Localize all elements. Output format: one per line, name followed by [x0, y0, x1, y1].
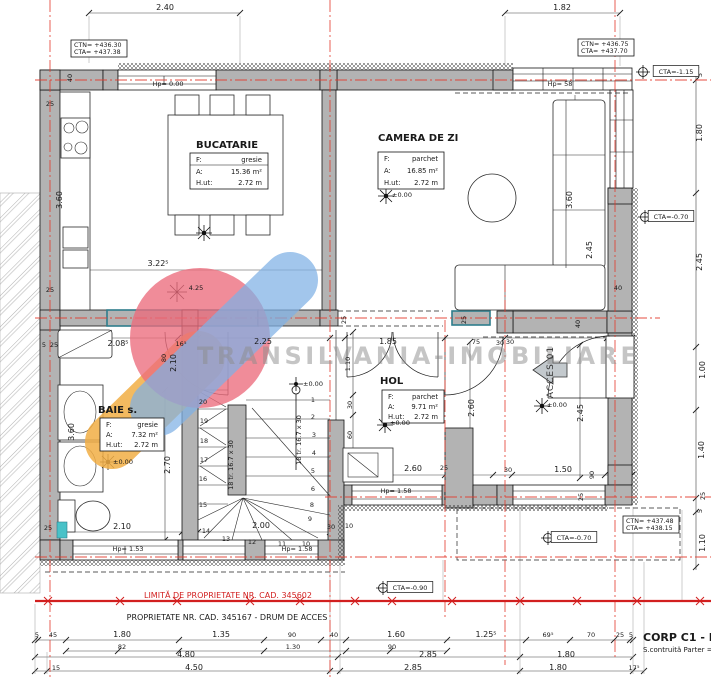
dimension-label: 2.10 — [113, 522, 131, 531]
svg-text:H.ut:: H.ut: — [196, 179, 212, 187]
stair-step-number: 18 — [200, 437, 208, 445]
chair — [175, 95, 199, 115]
chair — [246, 215, 270, 235]
dimension-label: ±0.00 — [392, 191, 412, 199]
property-limit-text: LIMITĂ DE PROPRIETATE NR. CAD. 345602 — [144, 589, 312, 600]
dimension-label: 1.25⁵ — [475, 630, 496, 639]
dimension-label: 2.45 — [695, 253, 704, 271]
dimension-label: 1.10 — [344, 357, 352, 371]
stair-step-number: 15 — [199, 501, 207, 509]
dimension-label: 75 — [472, 338, 480, 346]
dimension-label: 30 — [327, 523, 335, 531]
dimension-label: 2.45 — [585, 241, 594, 259]
dimension-label: Hp= 0.00 — [153, 80, 184, 88]
dimension-label: 25 — [340, 316, 348, 324]
stair-step-number: 16 — [199, 475, 207, 483]
dimension-label: 1.10 — [698, 534, 707, 552]
svg-text:2.72 m: 2.72 m — [238, 179, 262, 187]
room-camera-de-zi: CAMERA DE ZI F:parchet A:16.85 m² H.ut:2… — [378, 133, 458, 189]
dimension-label: 25 — [699, 492, 707, 500]
window — [513, 68, 632, 90]
room-hol: HOL F:parchet A:9.71 m² H.ut:2.72 m — [380, 376, 444, 423]
dimension-label: 1.00 — [698, 361, 707, 379]
dimension-label: 30 — [346, 401, 354, 409]
dimension-label: 30 — [506, 338, 514, 346]
dimension-label: 5 — [629, 631, 633, 639]
svg-text:CTA= +437.70: CTA= +437.70 — [581, 48, 628, 55]
svg-text:H.ut:: H.ut: — [106, 441, 122, 449]
svg-text:2.72 m: 2.72 m — [414, 179, 438, 187]
dimension-label: 25 — [50, 341, 58, 349]
svg-text:H.ut:: H.ut: — [384, 179, 400, 187]
stair-step-number: 3 — [312, 431, 316, 439]
dimension-label: 2.70 — [163, 456, 172, 474]
bathroom-cabinet — [58, 330, 112, 358]
floor-plan-canvas: TRANSILVANIA-IMOBILIARE BUCATARIE F:gres… — [0, 0, 711, 677]
svg-text:7.32 m²: 7.32 m² — [131, 431, 158, 439]
coffee-table — [468, 174, 516, 222]
corp-subtitle: S.contruită Parter = 72 — [643, 646, 711, 654]
elevation-box-topleft: CTN= +436.30 CTA= +437.38 — [71, 40, 127, 57]
svg-text:2.72 m: 2.72 m — [414, 413, 438, 421]
svg-text:A:: A: — [384, 167, 391, 175]
dimension-label: 2.60 — [467, 399, 476, 417]
dimension-label: 1.50 — [554, 465, 572, 474]
dimension-label: 1.85 — [379, 337, 397, 346]
dimension-label: 3.60 — [565, 191, 574, 209]
dimension-label: 5 — [696, 509, 704, 513]
svg-text:2.72 m: 2.72 m — [134, 441, 158, 449]
dimension-label: 3.60 — [67, 423, 76, 441]
dimension-label: 30 — [504, 466, 512, 474]
room-bucatarie: BUCATARIE F:gresie A:15.36 m² H.ut:2.72 … — [190, 140, 268, 189]
dimension-label: Hp= 1.58 — [381, 487, 412, 495]
dimension-label: 2.08⁵ — [107, 339, 128, 348]
stair-step-number: 5 — [311, 467, 315, 475]
stair-step-number: 8 — [310, 501, 314, 509]
stair-step-number: 11 — [278, 540, 286, 548]
sideboard — [343, 448, 393, 482]
dimension-label: CTA=-1.15 — [659, 68, 694, 76]
watermark-text: TRANSILVANIA-IMOBILIARE — [197, 342, 640, 370]
svg-text:parchet: parchet — [412, 393, 438, 401]
dimension-label: ±0.00 — [547, 401, 567, 409]
window — [610, 90, 633, 188]
svg-text:F:: F: — [106, 421, 112, 429]
dimension-label: 25 — [46, 286, 54, 294]
dimension-label: 40 — [66, 74, 74, 82]
dimension-label: 25 — [46, 100, 54, 108]
chair — [210, 215, 234, 235]
dimension-label: 1.35 — [212, 630, 230, 639]
floor-plan-page: TRANSILVANIA-IMOBILIARE BUCATARIE F:gres… — [0, 0, 711, 677]
chair — [175, 215, 199, 235]
dimension-label: 1.80 — [557, 650, 575, 659]
kitchen-sink — [63, 227, 88, 248]
dimension-label: 15 — [52, 664, 60, 672]
dimension-label: 3.22⁵ — [147, 259, 168, 268]
kitchen-counter — [60, 92, 90, 310]
svg-text:16.85 m²: 16.85 m² — [407, 167, 438, 175]
dimension-label: 1.80 — [113, 630, 131, 639]
dimension-label: 69⁵ — [543, 631, 554, 639]
dimension-label: 90 — [288, 631, 296, 639]
dimension-label: 1.40 — [697, 441, 706, 459]
dimension-label: 5 — [42, 341, 46, 349]
dimension-label: 2.85 — [419, 650, 437, 659]
dimension-label: 25 — [440, 464, 448, 472]
stair-step-number: 2 — [311, 413, 315, 421]
dimension-label: 40 — [574, 320, 582, 328]
dimension-label: 60 — [346, 431, 354, 439]
stair-step-number: 13 — [222, 535, 230, 543]
dimension-label: 4.25 — [189, 284, 203, 292]
toilet-accent — [57, 522, 67, 538]
room-title: CAMERA DE ZI — [378, 133, 458, 144]
dimension-label: 1.80 — [549, 663, 567, 672]
svg-text:F:: F: — [384, 155, 390, 163]
dimension-label: 1.30 — [286, 643, 300, 651]
dimension-label: 90 — [388, 643, 396, 651]
dimension-label: Hp= 58 — [548, 80, 573, 88]
cta-marker — [636, 65, 650, 79]
stair-step-number: 12 — [248, 538, 256, 546]
svg-text:F:: F: — [388, 393, 394, 401]
stair-step-number: 10 — [302, 540, 310, 548]
svg-text:CTA= +437.38: CTA= +437.38 — [74, 49, 121, 56]
svg-text:15.36 m²: 15.36 m² — [231, 168, 262, 176]
dimension-label: 40 — [330, 631, 338, 639]
svg-text:A:: A: — [106, 431, 113, 439]
stair-step-number: 19 — [200, 417, 208, 425]
dimension-label: 25 — [460, 316, 468, 324]
dimension-label: 82 — [118, 643, 126, 651]
dimension-label: 25 — [44, 524, 52, 532]
dimension-label: 17⁵ — [629, 664, 640, 672]
svg-text:A:: A: — [196, 168, 203, 176]
dimension-label: 4.50 — [185, 663, 203, 672]
stair-step-number: 9 — [308, 515, 312, 523]
dimension-label: 25 — [577, 493, 585, 501]
corp-title: CORP C1 - NR — [643, 631, 711, 644]
dimension-label: ±0.00 — [113, 458, 133, 466]
svg-text:A:: A: — [388, 403, 395, 411]
svg-text:CTN= +437.48: CTN= +437.48 — [626, 518, 674, 525]
access-road-text: PROPRIETATE NR. CAD. 345167 - DRUM DE AC… — [127, 613, 328, 622]
chair — [210, 95, 234, 115]
dimension-label: ±0.00 — [303, 380, 323, 388]
elevation-box-bottomright: CTN= +437.48 CTA= +438.15 — [623, 516, 679, 533]
svg-text:CTN= +436.75: CTN= +436.75 — [581, 41, 629, 48]
dimension-label: 2.85 — [404, 663, 422, 672]
dimension-label: 4.80 — [177, 650, 195, 659]
room-title: BUCATARIE — [196, 140, 258, 151]
dimension-label: 90 — [588, 471, 596, 479]
room-title: BAIE s. — [98, 405, 137, 416]
dimension-label: Hp= 1.53 — [113, 545, 144, 553]
dimension-label: 18 tr. 16.7 x 30 — [227, 440, 235, 490]
stair-step-number: 4 — [312, 449, 316, 457]
dimension-label: 80 — [160, 354, 168, 362]
dimension-label: ACCES 01 — [546, 346, 556, 398]
stair-step-number: 14 — [202, 527, 210, 535]
dimension-label: 2.60 — [404, 464, 422, 473]
stair-step-number: 20 — [199, 398, 207, 406]
dimension-label: 2.10 — [169, 354, 178, 372]
window — [513, 485, 605, 505]
room-title: HOL — [380, 376, 404, 387]
stair-step-number: 6 — [311, 485, 315, 493]
dimension-label: 2.00 — [252, 521, 270, 530]
dimension-label: 40 — [614, 284, 622, 292]
dimension-label: 5 — [35, 631, 39, 639]
dimension-label: 10 — [345, 522, 353, 530]
stair-step-number: 17 — [200, 456, 208, 464]
dimension-label: 70 — [587, 631, 595, 639]
dimension-label: 2.40 — [156, 3, 174, 12]
neighbor-building-hatch — [0, 193, 40, 593]
dimension-label: 2.25 — [254, 337, 272, 346]
dimension-label: 25 — [616, 631, 624, 639]
svg-text:parchet: parchet — [412, 155, 438, 163]
dimension-label: 16⁵ — [176, 340, 187, 348]
dimension-label: CTA=-0.90 — [393, 584, 428, 592]
dimension-label: 18 tr. 16.7 x 30 — [295, 415, 303, 465]
dimension-label: CTA=-0.70 — [557, 534, 592, 542]
dimension-label: 3.60 — [55, 191, 64, 209]
svg-text:CTA= +438.15: CTA= +438.15 — [626, 525, 673, 532]
dimension-label: 30 — [496, 339, 504, 347]
svg-text:CTN= +436.30: CTN= +436.30 — [74, 42, 122, 49]
svg-text:F:: F: — [196, 156, 202, 164]
stair-step-number: 1 — [311, 396, 315, 404]
svg-text:9.71 m²: 9.71 m² — [411, 403, 438, 411]
elevation-box-topright: CTN= +436.75 CTA= +437.70 — [578, 39, 634, 56]
svg-text:gresie: gresie — [241, 156, 262, 164]
dimension-label: 1.80 — [695, 124, 704, 142]
svg-text:gresie: gresie — [137, 421, 158, 429]
dimension-label: 1.60 — [387, 630, 405, 639]
dimension-label: 1.82 — [553, 3, 571, 12]
dimension-label: 2.45 — [576, 404, 585, 422]
dimension-label: 45 — [49, 631, 57, 639]
dimension-label: ±0.00 — [390, 419, 410, 427]
chair — [246, 95, 270, 115]
dimension-label: CTA=-0.70 — [654, 213, 689, 221]
